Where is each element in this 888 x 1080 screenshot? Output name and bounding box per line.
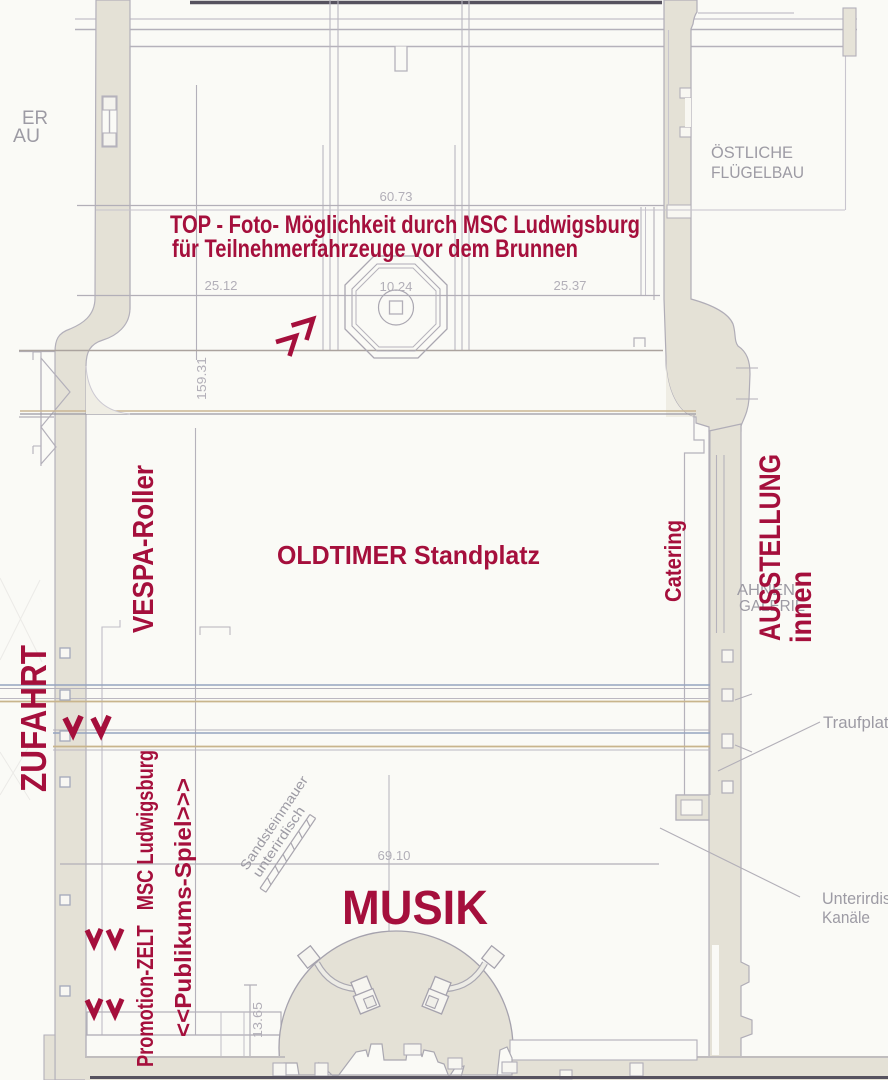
svg-text:ZUFAHRT: ZUFAHRT [13,645,54,792]
svg-text:69.10: 69.10 [378,848,411,863]
svg-text:25.37: 25.37 [554,278,587,293]
svg-text:ÖSTLICHE: ÖSTLICHE [711,143,793,162]
svg-text:159.31: 159.31 [195,357,209,400]
svg-text:VESPA-Roller: VESPA-Roller [128,465,160,633]
svg-text:Unterirdische: Unterirdische [822,889,888,908]
svg-text:Kanäle: Kanäle [822,908,870,927]
svg-text:MUSIK: MUSIK [342,881,488,935]
svg-text:10.24: 10.24 [380,279,413,294]
svg-text:<<Publikums-Spiel>>>: <<Publikums-Spiel>>> [170,778,196,1037]
svg-text:13.65: 13.65 [251,1002,265,1038]
svg-text:OLDTIMER Standplatz: OLDTIMER Standplatz [277,540,540,570]
svg-text:für Teilnehmerfahrzeuge vor de: für Teilnehmerfahrzeuge vor dem Brunnen [172,235,578,263]
svg-text:Catering: Catering [660,520,686,602]
svg-text:innen: innen [785,571,818,643]
svg-text:FLÜGELBAU: FLÜGELBAU [711,163,804,182]
svg-text:Promotion-ZELT MSC Ludwigsbu: Promotion-ZELT MSC Ludwigsburg [132,750,158,1067]
svg-text:AU: AU [13,126,40,147]
svg-text:60.73: 60.73 [380,189,413,204]
svg-text:25.12: 25.12 [205,278,238,293]
svg-text:Traufplatz: Traufplatz [823,713,888,732]
svg-text:AUSSTELLUNG: AUSSTELLUNG [754,454,787,641]
